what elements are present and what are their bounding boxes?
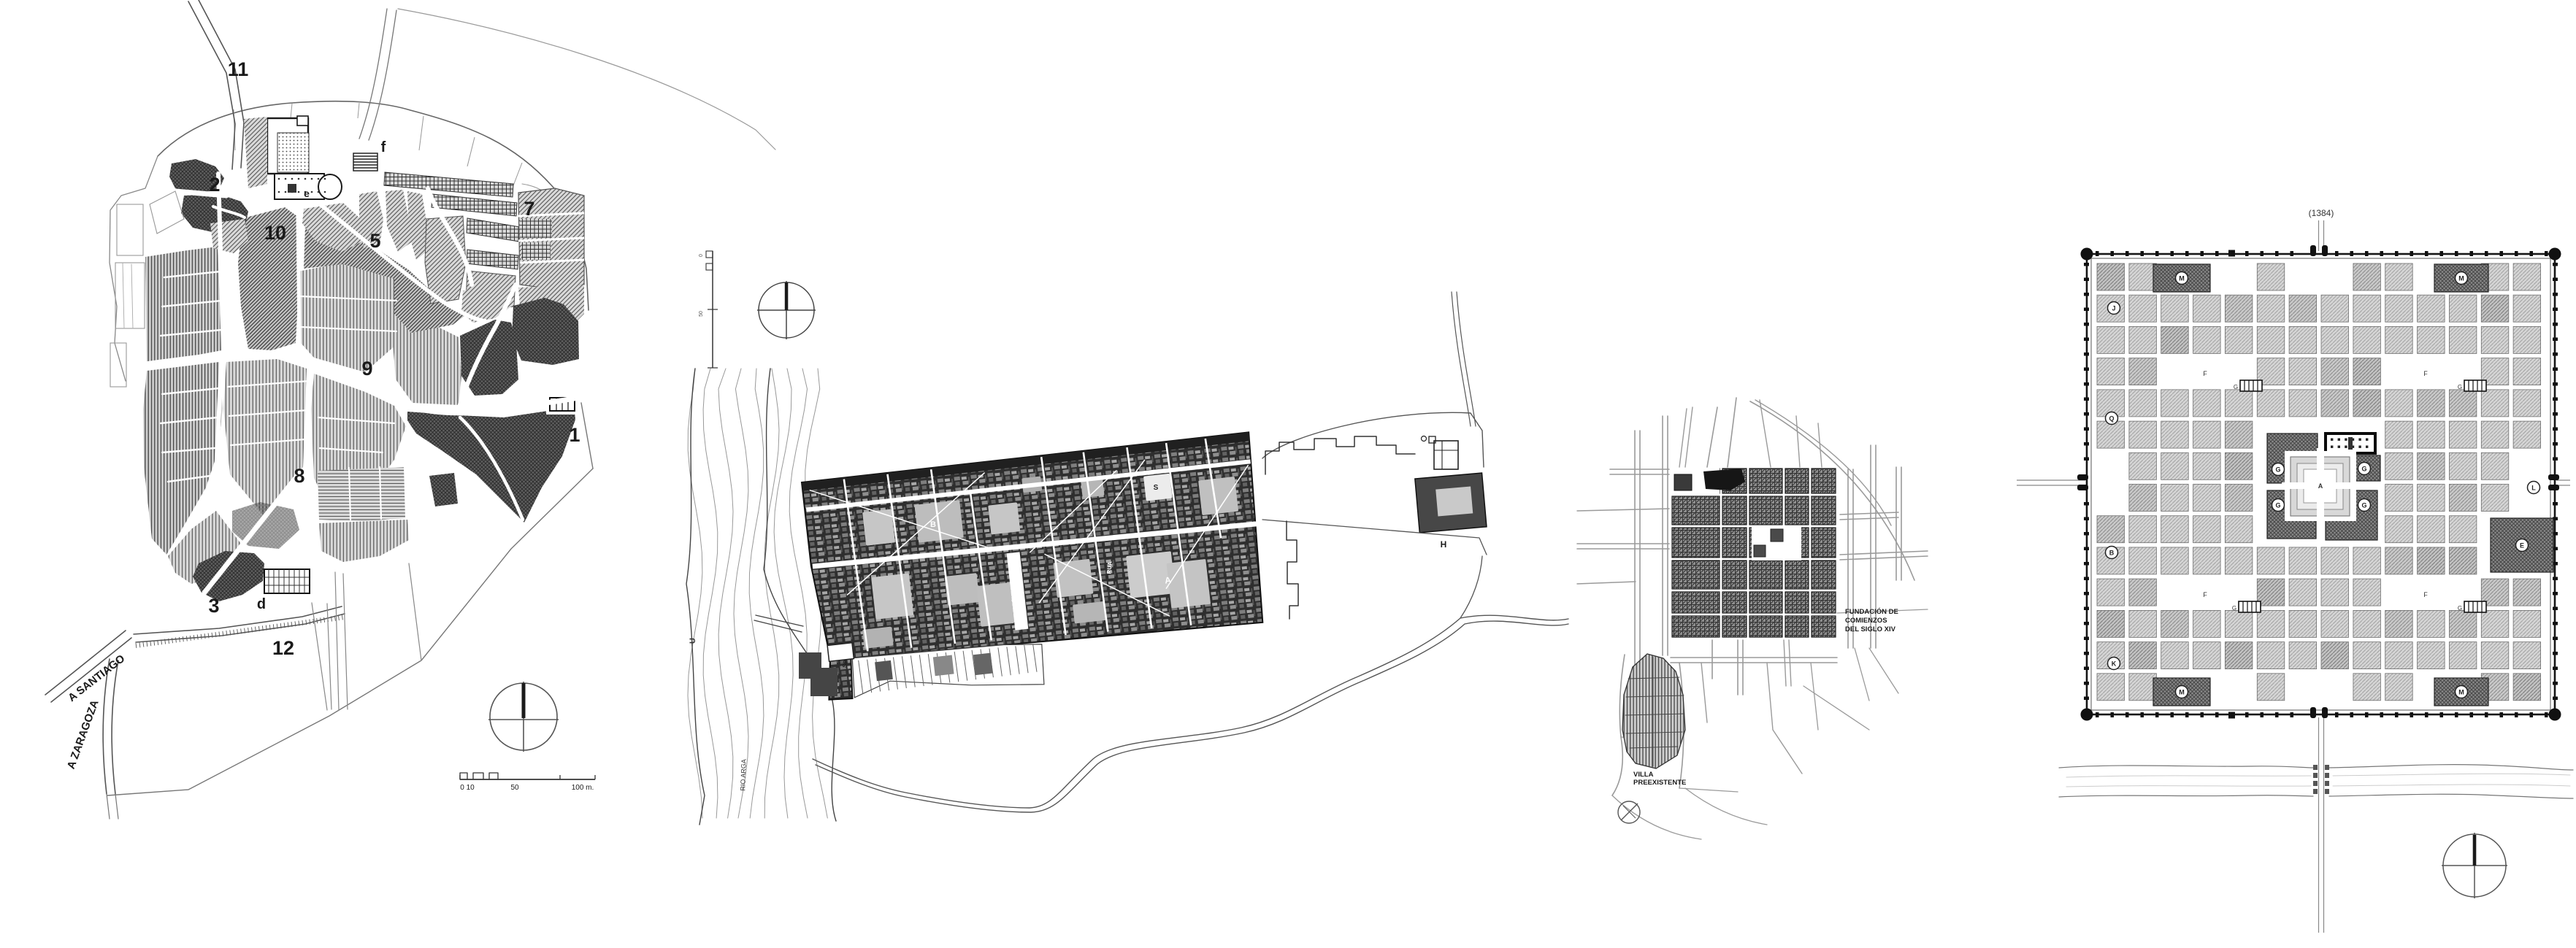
svg-text:M: M [2179,275,2185,282]
svg-text:M: M [2458,689,2464,696]
svg-text:1: 1 [569,424,580,446]
svg-text:0 10: 0 10 [460,784,475,792]
svg-text:J: J [2112,305,2115,312]
svg-text:A: A [2318,482,2323,490]
svg-text:5: 5 [369,230,380,252]
svg-text:50: 50 [699,311,704,317]
svg-text:F: F [2423,370,2428,377]
svg-text:7: 7 [524,198,534,220]
svg-text:H: H [1441,539,1447,550]
svg-text:100 m.: 100 m. [572,784,594,792]
svg-text:f: f [381,139,386,155]
svg-text:COMIENZOS: COMIENZOS [1845,617,1887,625]
svg-text:B: B [2109,550,2115,557]
svg-text:M: M [2458,275,2464,282]
svg-text:e: e [304,188,310,199]
svg-text:PREEXISTENTE: PREEXISTENTE [1633,779,1686,787]
svg-text:G: G [2458,605,2462,612]
svg-text:RUA: RUA [1105,561,1113,574]
svg-text:12: 12 [272,637,294,659]
svg-text:L: L [2531,485,2536,492]
svg-text:G: G [2275,466,2280,474]
svg-text:B: B [930,520,936,529]
svg-text:G: G [2234,384,2238,390]
svg-text:DEL SIGLO XIV: DEL SIGLO XIV [1845,625,1896,633]
svg-text:G: G [2275,502,2280,509]
svg-text:RIO ARGA: RIO ARGA [739,759,748,791]
svg-text:G: G [2361,466,2366,473]
svg-text:FUNDACIÓN DE: FUNDACIÓN DE [1845,607,1898,616]
svg-text:0: 0 [699,254,704,257]
svg-text:M: M [1011,595,1019,601]
svg-text:U: U [689,638,697,644]
svg-text:10: 10 [264,222,286,244]
svg-text:G: G [2232,605,2236,612]
svg-text:(1384): (1384) [2309,208,2334,218]
svg-text:d: d [257,596,266,612]
svg-text:F: F [2203,591,2207,598]
svg-text:M: M [2179,689,2185,696]
svg-text:VILLA: VILLA [1633,771,1654,779]
svg-text:11: 11 [228,58,249,80]
svg-text:K: K [2112,660,2117,668]
svg-text:F: F [2203,370,2207,377]
svg-text:G: G [2458,384,2462,390]
svg-text:50: 50 [510,784,519,792]
svg-text:S: S [1154,484,1159,492]
svg-text:F: F [2423,591,2428,598]
svg-text:3: 3 [208,595,219,617]
svg-text:8: 8 [294,465,304,487]
svg-text:9: 9 [361,358,372,379]
svg-text:Q: Q [2109,415,2114,423]
svg-text:E: E [2520,542,2524,550]
svg-text:2: 2 [209,174,220,196]
svg-text:G: G [2361,502,2366,509]
